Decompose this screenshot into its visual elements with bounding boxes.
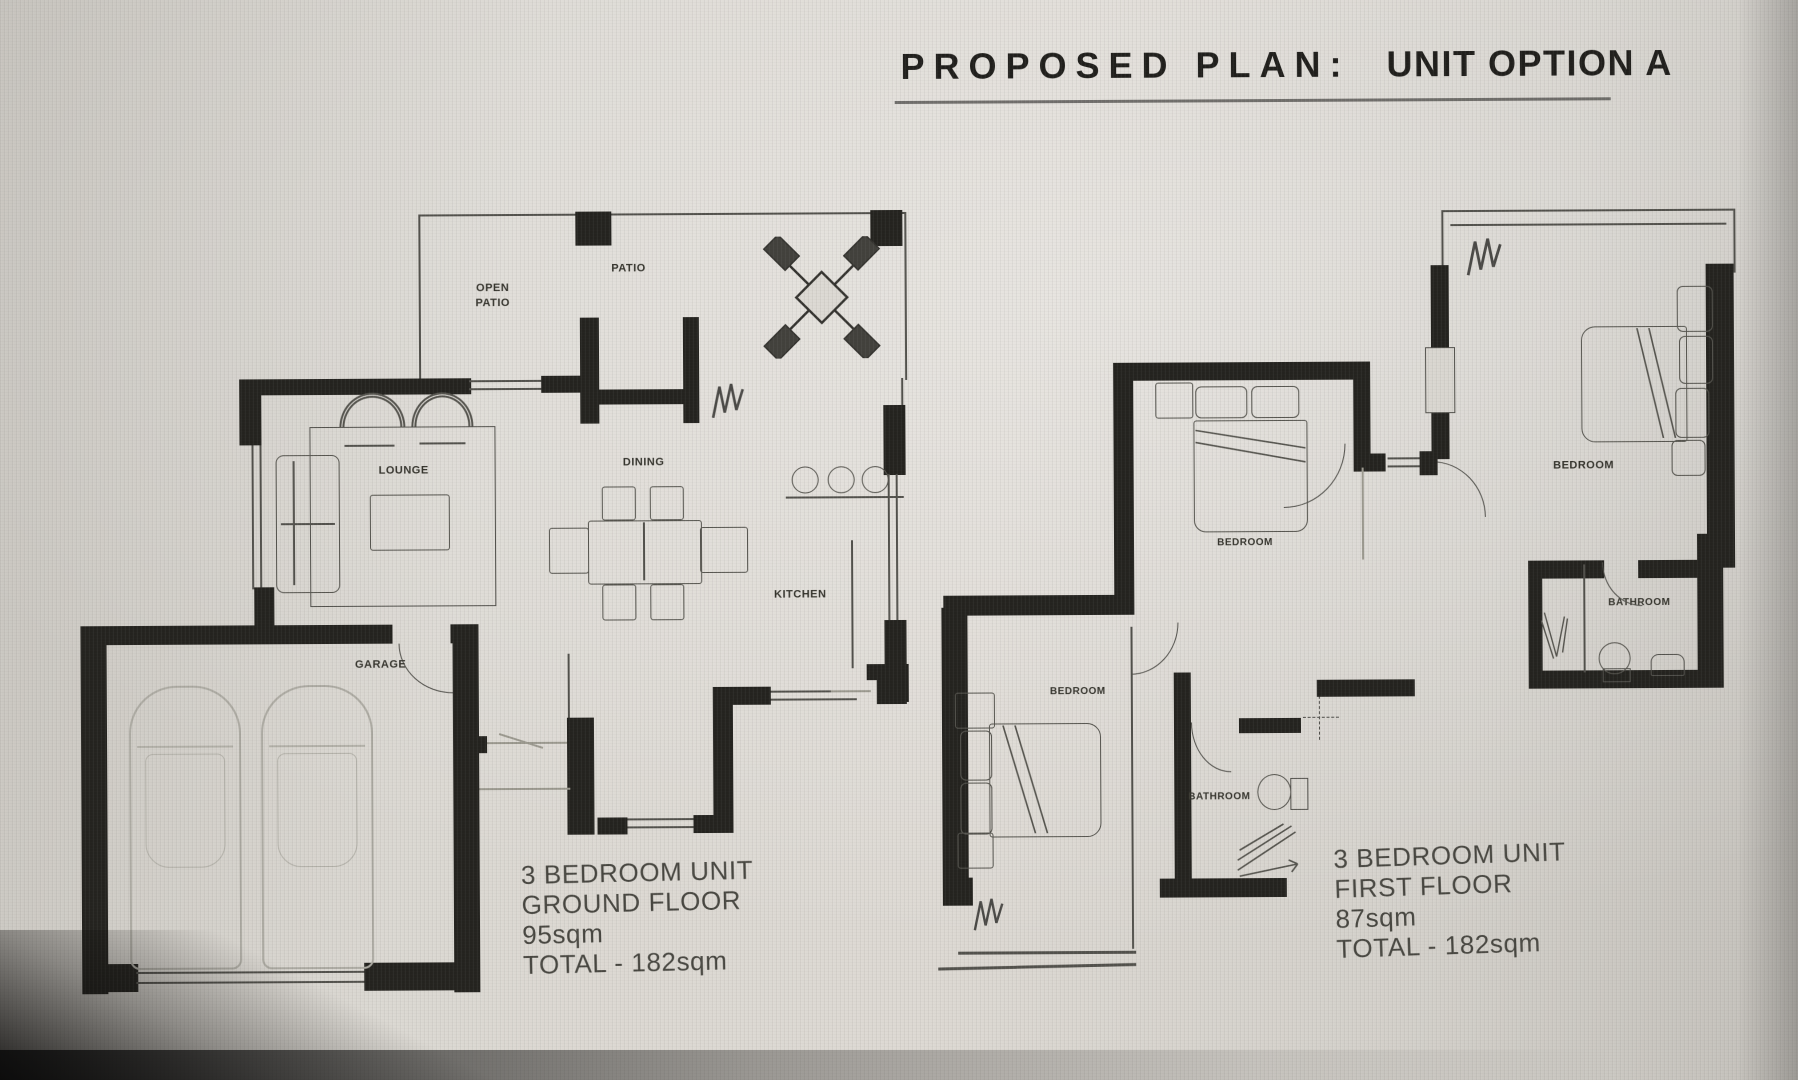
wall-segment — [1113, 362, 1369, 381]
window-symbol — [251, 445, 262, 589]
wall-segment — [1174, 672, 1192, 882]
page-title: PROPOSED PLAN: UNIT OPTION A — [900, 42, 1672, 88]
dining-chair — [602, 584, 636, 620]
dining-chair — [549, 528, 589, 574]
basin — [1651, 654, 1685, 676]
open-patio-label-line2: PATIO — [449, 297, 537, 309]
window-zigzag-icon — [707, 379, 747, 423]
open-patio-label: OPEN — [449, 282, 537, 294]
wall-segment — [597, 817, 627, 834]
room-outline — [1733, 209, 1735, 273]
dining-label: DINING — [606, 456, 682, 468]
outdoor-table-set — [760, 236, 883, 359]
room-outline — [1441, 209, 1733, 213]
sofa-seat-line — [281, 523, 335, 525]
toilet-cistern — [1603, 668, 1631, 682]
wall-segment — [567, 718, 595, 835]
caption-line: TOTAL - 182sqm — [1336, 926, 1569, 964]
wall-segment — [90, 964, 138, 992]
patio-edge-line — [901, 378, 903, 408]
title-unit-option: UNIT OPTION A — [1386, 42, 1672, 85]
caption-line: GROUND FLOOR — [521, 885, 754, 920]
title-proposed-plan: PROPOSED PLAN: — [900, 44, 1350, 88]
bedside-table — [958, 833, 994, 869]
room-outline — [1450, 223, 1726, 226]
ground-floor-caption: 3 BEDROOM UNIT GROUND FLOOR 95sqm TOTAL … — [521, 855, 756, 980]
stove-burner — [828, 466, 855, 493]
wall-segment — [239, 379, 261, 445]
toilet-cistern — [1290, 778, 1308, 810]
bedroom-label: BEDROOM — [1043, 686, 1113, 697]
coffee-table — [370, 494, 450, 550]
wall-segment — [1638, 560, 1698, 578]
window-sill-line — [831, 690, 871, 692]
garage-door-symbol — [136, 971, 366, 984]
caption-line: TOTAL - 182sqm — [523, 945, 756, 980]
pillow — [960, 731, 992, 781]
dining-chair — [700, 527, 748, 573]
wall-segment — [683, 317, 700, 423]
wall-segment — [1420, 451, 1438, 475]
first-floor-caption: 3 BEDROOM UNIT FIRST FLOOR 87sqm TOTAL -… — [1333, 836, 1569, 964]
wall-segment — [713, 687, 734, 833]
wall-segment — [1697, 534, 1724, 688]
wall-segment — [80, 626, 108, 994]
plan-drawing: PROPOSED PLAN: UNIT OPTION A OPEN PATIO … — [0, 0, 1798, 1080]
armchair-front-line — [344, 445, 394, 447]
car-cabin-outline — [145, 754, 226, 868]
reference-cross-mark — [1303, 717, 1339, 718]
bedside-table — [1155, 382, 1193, 418]
kitchen-counter-line — [786, 496, 904, 499]
stairs-symbol — [1231, 818, 1305, 882]
wall-segment — [693, 815, 733, 833]
door-arc — [1130, 623, 1178, 675]
armchair — [411, 392, 473, 426]
wall-segment — [80, 625, 392, 646]
pillow — [1251, 386, 1299, 418]
partition-line — [568, 654, 570, 718]
bedside-table — [955, 693, 995, 729]
toilet — [1257, 774, 1291, 810]
armchair — [339, 393, 405, 428]
drawing-line — [958, 951, 1136, 955]
wall-segment — [1354, 453, 1386, 471]
car-cabin-outline — [277, 753, 358, 867]
bedroom-label: BEDROOM — [1210, 537, 1280, 548]
bedroom-label: BEDROOM — [1544, 459, 1624, 471]
wall-segment — [1528, 560, 1604, 578]
wall-segment — [453, 643, 481, 992]
lounge-label: LOUNGE — [366, 464, 442, 476]
patio-label: PATIO — [595, 262, 663, 274]
room-outline — [1441, 210, 1443, 272]
dining-table-line — [643, 522, 645, 580]
wall-segment — [1113, 363, 1134, 615]
dining-chair — [602, 486, 636, 520]
dining-chair — [650, 486, 684, 520]
shower-symbol — [1536, 606, 1580, 664]
bed-sheet-lines — [993, 725, 1064, 833]
hall-partition-line — [1130, 627, 1134, 949]
window-symbol — [469, 380, 545, 390]
garage-label: GARAGE — [341, 659, 421, 671]
wall-segment — [580, 318, 600, 424]
wall-segment — [1353, 362, 1371, 464]
stove-burner — [862, 466, 889, 493]
door-arc — [1284, 444, 1346, 508]
wall-segment — [575, 212, 611, 246]
pillow — [1195, 386, 1247, 418]
window-zigzag-icon — [1462, 233, 1504, 281]
drawing-line — [938, 963, 1136, 970]
floor-plan-photo: PROPOSED PLAN: UNIT OPTION A OPEN PATIO … — [0, 0, 1798, 1080]
wall-segment — [1239, 718, 1301, 733]
bedside-table — [1671, 440, 1705, 476]
wall-segment — [580, 389, 699, 405]
pillow — [1675, 388, 1709, 438]
wall-segment — [943, 595, 1129, 616]
door-arc — [1191, 722, 1231, 772]
wall-segment — [1317, 679, 1415, 697]
car-outline — [129, 685, 242, 970]
wall-segment — [943, 878, 973, 906]
window-recess — [1425, 347, 1455, 413]
wall-segment — [364, 962, 462, 991]
title-underline — [895, 97, 1611, 104]
window-symbol — [1388, 457, 1424, 467]
kitchen-label: KITCHEN — [764, 588, 836, 600]
pillow — [1679, 336, 1713, 384]
window-symbol — [627, 818, 693, 828]
armchair-front-line — [419, 442, 465, 444]
car-windshield-line — [137, 745, 233, 748]
dining-chair — [650, 584, 684, 620]
kitchen-counter-line — [851, 540, 854, 668]
door-arc — [1432, 461, 1486, 517]
bathroom-label: BATHROOM — [1181, 791, 1257, 802]
wall-segment — [883, 405, 905, 475]
shower-partition-line — [1583, 564, 1586, 672]
window-zigzag-icon — [970, 893, 1006, 935]
car-outline — [261, 685, 374, 970]
wall-segment — [887, 664, 909, 702]
pillow — [1677, 286, 1713, 332]
pillow — [960, 783, 992, 835]
wall-segment — [450, 624, 478, 643]
stove-burner — [792, 466, 819, 493]
car-windshield-line — [269, 745, 365, 748]
room-line — [1362, 468, 1364, 560]
